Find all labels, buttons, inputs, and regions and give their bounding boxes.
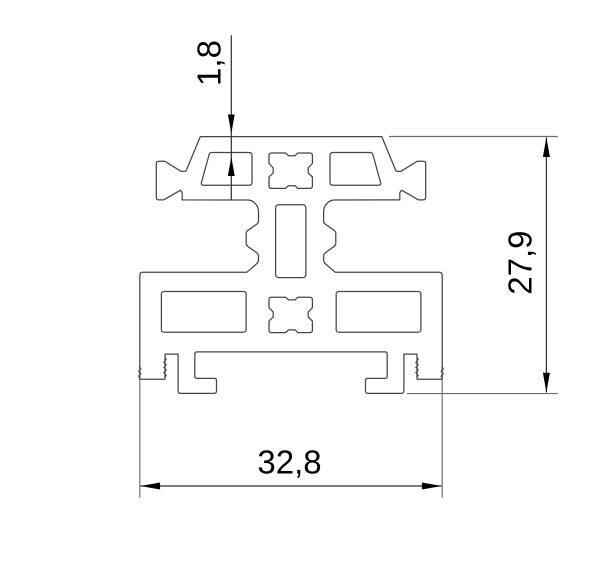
svg-text:27,9: 27,9 (502, 230, 539, 294)
svg-text:32,8: 32,8 (257, 443, 321, 480)
svg-text:1,8: 1,8 (191, 40, 228, 86)
